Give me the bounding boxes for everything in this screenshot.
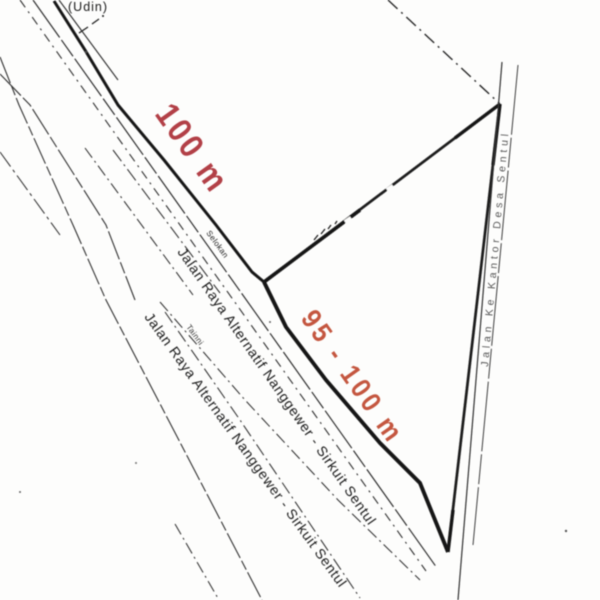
svg-text:(Udin): (Udin) [68,0,108,14]
